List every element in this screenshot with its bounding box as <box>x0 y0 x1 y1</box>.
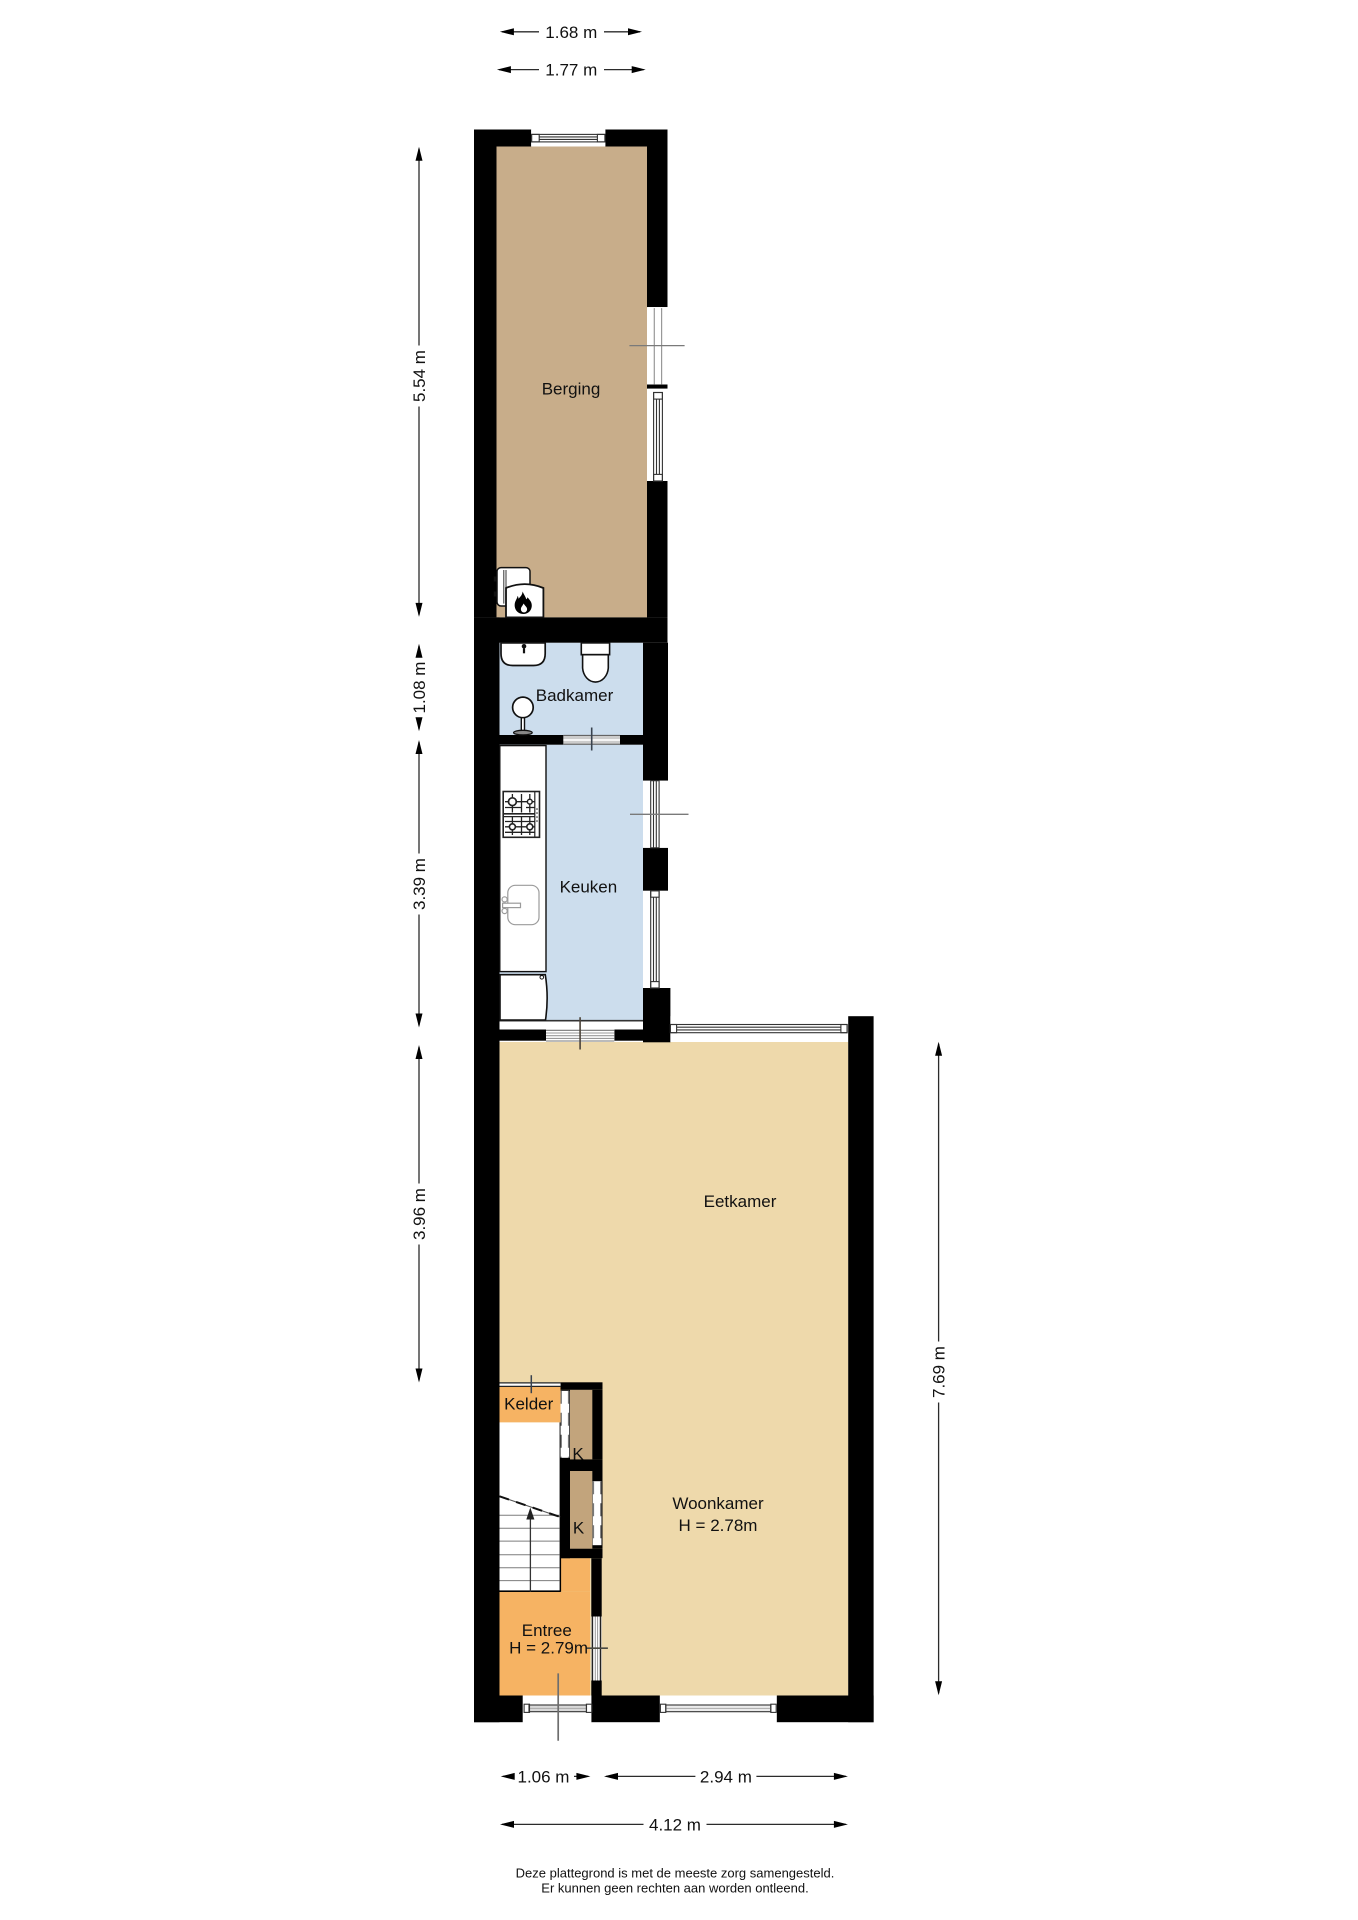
svg-text:Kelder: Kelder <box>504 1395 553 1414</box>
svg-text:7.69 m: 7.69 m <box>930 1346 949 1398</box>
svg-text:3.39 m: 3.39 m <box>410 858 429 910</box>
svg-text:Keuken: Keuken <box>560 878 618 897</box>
svg-text:3.96 m: 3.96 m <box>410 1188 429 1240</box>
svg-text:Eetkamer: Eetkamer <box>704 1192 777 1211</box>
svg-text:H = 2.79m: H = 2.79m <box>509 1639 588 1658</box>
svg-text:1.77 m: 1.77 m <box>545 61 597 80</box>
svg-text:Berging: Berging <box>542 380 601 399</box>
svg-text:1.08 m: 1.08 m <box>410 662 429 714</box>
svg-text:1.68 m: 1.68 m <box>545 23 597 42</box>
svg-text:Entree: Entree <box>522 1621 572 1640</box>
svg-text:Badkamer: Badkamer <box>536 686 614 705</box>
svg-text:1.06 m: 1.06 m <box>518 1767 570 1786</box>
svg-text:Er kunnen geen rechten aan wor: Er kunnen geen rechten aan worden ontlee… <box>541 1881 808 1896</box>
svg-text:4.12 m: 4.12 m <box>649 1815 701 1834</box>
svg-text:5.54 m: 5.54 m <box>410 350 429 402</box>
svg-text:H = 2.78m: H = 2.78m <box>679 1516 758 1535</box>
svg-text:Deze plattegrond is met de mee: Deze plattegrond is met de meeste zorg s… <box>516 1865 835 1880</box>
svg-text:Woonkamer: Woonkamer <box>672 1494 764 1513</box>
svg-text:2.94 m: 2.94 m <box>700 1767 752 1786</box>
svg-text:K: K <box>573 1519 585 1538</box>
svg-text:K: K <box>572 1445 584 1464</box>
